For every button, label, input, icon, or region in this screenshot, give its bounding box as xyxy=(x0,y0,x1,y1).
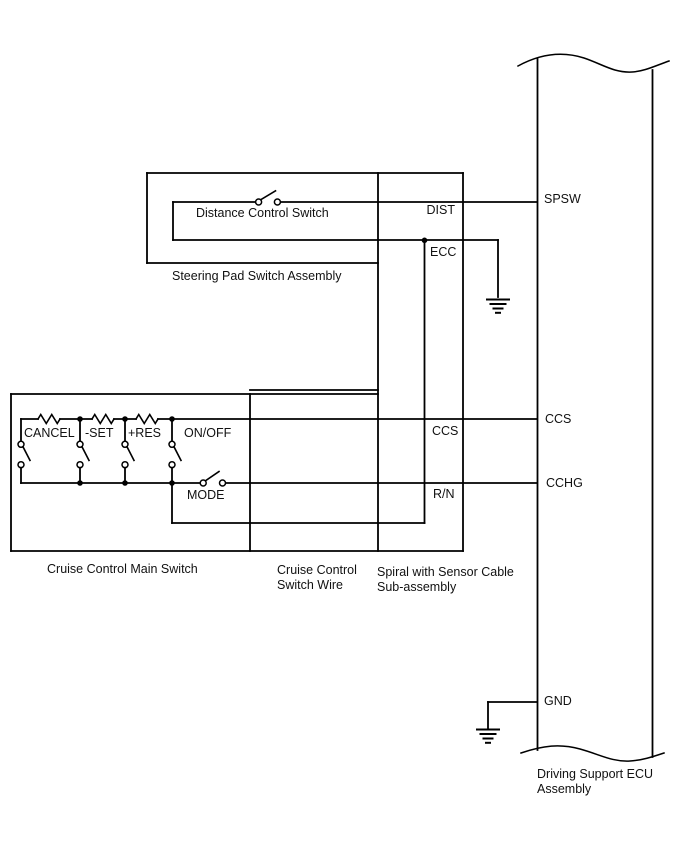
main-switch-label: Cruise Control Main Switch xyxy=(47,563,198,577)
ecu-terminal-ccs-label: CCS xyxy=(545,413,571,427)
onoff-switch-icon xyxy=(169,419,181,483)
switch-wire-label-line1: Cruise Control xyxy=(277,563,357,578)
dist-wire-label: DIST xyxy=(421,204,455,218)
ecc-wire-label: ECC xyxy=(430,246,456,260)
ground-icon xyxy=(487,300,509,313)
ecu-assembly-label: Driving Support ECU Assembly xyxy=(537,767,653,796)
junction-dot xyxy=(122,416,128,422)
distance-switch-label: Distance Control Switch xyxy=(196,207,329,221)
junction-dot xyxy=(169,480,175,486)
steering-pad-assembly-label: Steering Pad Switch Assembly xyxy=(172,270,342,284)
switch-wire-label: Cruise Control Switch Wire xyxy=(277,563,357,592)
junction-dot xyxy=(422,238,428,244)
resistor-icon xyxy=(38,415,60,424)
switch-wire-label-line2: Switch Wire xyxy=(277,578,357,593)
onoff-switch-label: ON/OFF xyxy=(184,427,231,441)
ecu-terminal-spsw-label: SPSW xyxy=(544,193,581,207)
distance-switch-icon xyxy=(256,191,281,205)
ecu-bar xyxy=(518,54,669,761)
junction-dot xyxy=(122,480,128,486)
ecu-terminal-gnd-label: GND xyxy=(544,695,572,709)
ecu-top-torn-edge-icon xyxy=(518,54,669,72)
res-switch-label: +RES xyxy=(128,427,161,441)
spiral-label: Spiral with Sensor Cable Sub-assembly xyxy=(377,565,514,594)
mode-switch-icon xyxy=(200,472,225,487)
set-switch-label: -SET xyxy=(85,427,113,441)
resistor-icon xyxy=(92,415,114,424)
junction-dot xyxy=(169,416,175,422)
junction-dot xyxy=(77,416,83,422)
wiring-diagram: Distance Control Switch DIST ECC Steerin… xyxy=(0,0,688,852)
ecu-terminal-cchg-label: CCHG xyxy=(546,477,583,491)
resistor-icon xyxy=(136,415,158,424)
ground-icon xyxy=(477,730,499,743)
main-switch-box xyxy=(11,390,463,551)
spiral-label-line1: Spiral with Sensor Cable xyxy=(377,565,514,580)
ecu-bottom-torn-edge-icon xyxy=(521,746,664,761)
cancel-switch-label: CANCEL xyxy=(24,427,75,441)
ecu-assembly-label-line2: Assembly xyxy=(537,782,653,797)
gnd-wire xyxy=(488,702,537,728)
spiral-label-line2: Sub-assembly xyxy=(377,580,514,595)
rn-wire-label: R/N xyxy=(433,488,455,502)
ecu-assembly-label-line1: Driving Support ECU xyxy=(537,767,653,782)
mode-switch-label: MODE xyxy=(187,489,225,503)
junction-dot xyxy=(77,480,83,486)
ccs-wire-label: CCS xyxy=(432,425,458,439)
